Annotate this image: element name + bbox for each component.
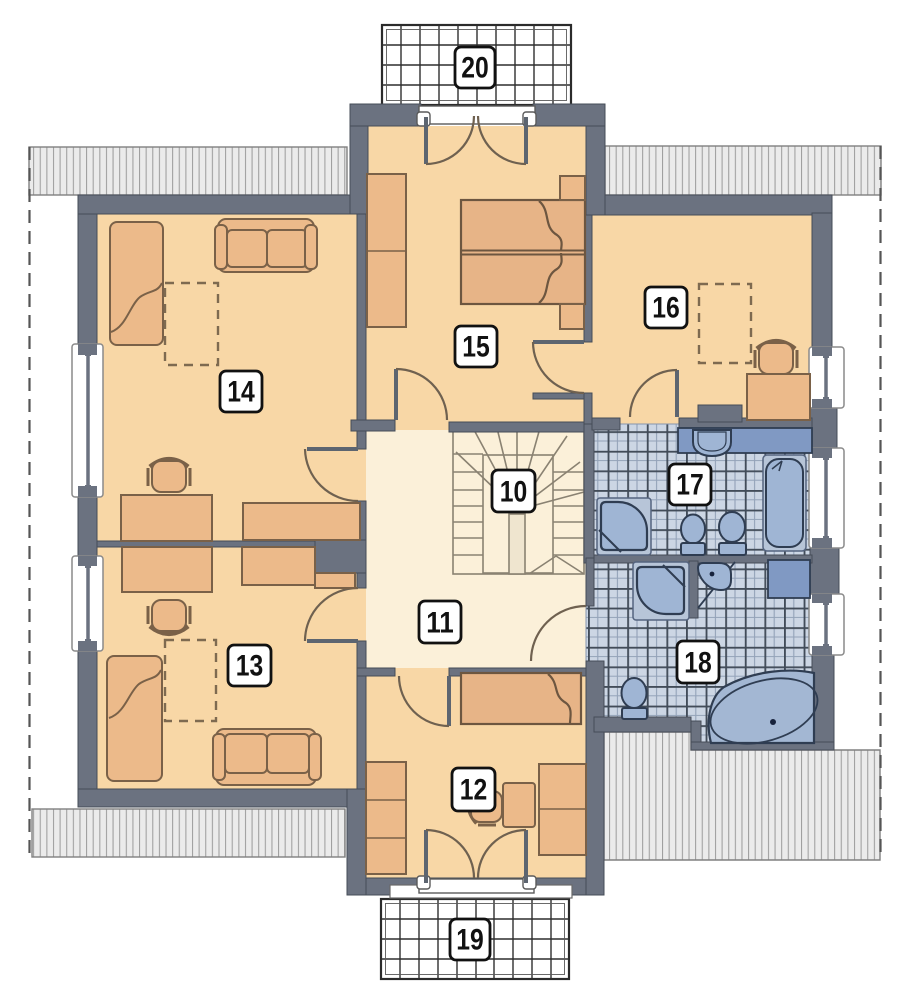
svg-text:15: 15: [462, 331, 490, 364]
svg-text:14: 14: [227, 376, 255, 409]
svg-text:19: 19: [456, 924, 484, 957]
svg-text:12: 12: [460, 774, 488, 807]
svg-text:11: 11: [426, 607, 454, 640]
svg-text:10: 10: [500, 476, 528, 509]
svg-text:13: 13: [236, 650, 264, 683]
svg-text:17: 17: [676, 469, 704, 502]
svg-text:16: 16: [652, 292, 680, 325]
svg-text:20: 20: [461, 52, 489, 85]
svg-text:18: 18: [684, 647, 712, 680]
